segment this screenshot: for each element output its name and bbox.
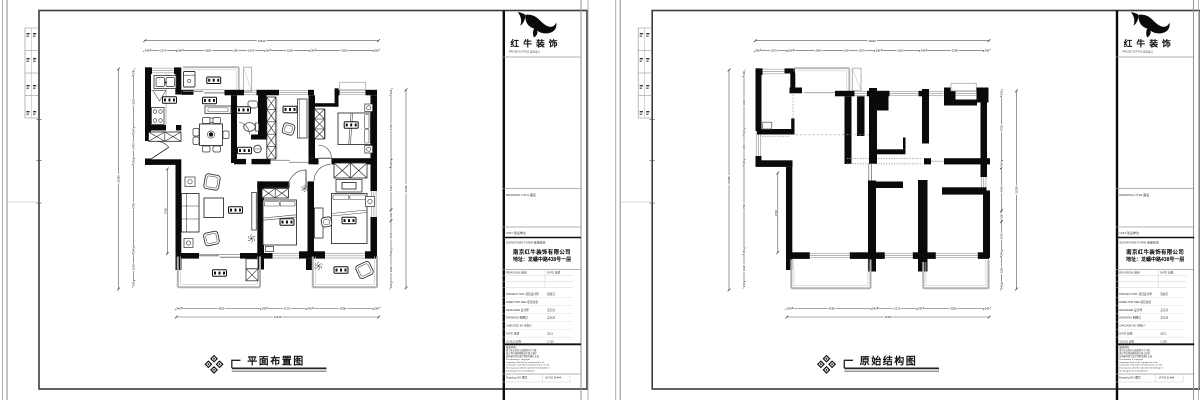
svg-text:PROJECT&TITLE 装饰设计: PROJECT&TITLE 装饰设计: [509, 50, 540, 54]
svg-text:JA742 B-5#4: JA742 B-5#4: [545, 375, 562, 379]
svg-text:2900: 2900: [815, 48, 822, 52]
svg-text:DIRECTOR DER 项目总监: DIRECTOR DER 项目总监: [506, 300, 538, 304]
svg-text:平面布置图: 平面布置图: [247, 354, 305, 367]
svg-text:2250: 2250: [897, 48, 904, 52]
svg-text:1:100: 1:100: [1160, 339, 1167, 343]
svg-text:11310: 11310: [274, 315, 282, 319]
svg-text:SCALE 比例: SCALE 比例: [506, 339, 521, 343]
svg-text:240: 240: [1000, 284, 1004, 289]
svg-text:地址：龙蟠中路438号一层: 地址：龙蟠中路438号一层: [513, 256, 571, 263]
svg-text:REVISIONS 会审: REVISIONS 会审: [506, 270, 527, 274]
svg-text:240: 240: [985, 307, 990, 311]
svg-text:240: 240: [389, 89, 393, 94]
svg-text:240: 240: [1000, 90, 1004, 95]
svg-text:Discrepancy shall be reported: Discrepancy shall be reported immediatel…: [506, 367, 550, 370]
svg-text:3020: 3020: [132, 98, 136, 105]
svg-text:240: 240: [307, 307, 312, 311]
svg-text:2021: 2021: [547, 332, 553, 336]
svg-text:240: 240: [389, 283, 393, 288]
svg-text:4700: 4700: [742, 203, 746, 210]
svg-text:11305: 11305: [404, 185, 408, 193]
svg-text:版权所有: 版权所有: [1119, 345, 1130, 349]
svg-text:240: 240: [132, 69, 136, 74]
svg-text:240: 240: [742, 70, 746, 75]
svg-text:11305: 11305: [1015, 186, 1019, 194]
svg-text:360: 360: [1000, 162, 1004, 167]
svg-text:1470: 1470: [132, 143, 136, 150]
svg-text:1570: 1570: [771, 48, 778, 52]
svg-text:SIGNATURE FORM 会审签名: SIGNATURE FORM 会审签名: [506, 240, 546, 245]
svg-text:1620: 1620: [742, 265, 746, 272]
svg-text:Company shall not be reproduce: Company shall not be reproduced or be: [1119, 361, 1158, 364]
svg-text:1570: 1570: [160, 48, 167, 52]
svg-text:1:100: 1:100: [547, 339, 554, 343]
svg-text:UNIT 建设单位: UNIT 建设单位: [506, 230, 526, 235]
svg-text:240: 240: [788, 48, 793, 52]
svg-text:1570: 1570: [248, 48, 255, 52]
svg-text:1620: 1620: [1000, 267, 1004, 274]
svg-text:DRAWING 制图员: DRAWING 制图员: [1119, 316, 1141, 320]
svg-text:DATE 日期: DATE 日期: [506, 332, 519, 336]
svg-text:孟宪涛: 孟宪涛: [547, 308, 555, 312]
svg-text:240: 240: [265, 48, 270, 52]
svg-text:2410: 2410: [1000, 186, 1004, 193]
svg-text:240: 240: [921, 48, 926, 52]
svg-text:3290: 3290: [950, 307, 957, 311]
svg-text:240: 240: [132, 159, 136, 164]
svg-text:REVISIONS 会审: REVISIONS 会审: [1119, 270, 1140, 274]
svg-text:240: 240: [310, 48, 315, 52]
svg-text:DRAWING LITLE 图名: DRAWING LITLE 图名: [1119, 192, 1149, 197]
svg-text:the designer for amendments: the designer for amendments: [506, 370, 535, 373]
svg-text:4700: 4700: [132, 202, 136, 209]
svg-text:DATE 日期: DATE 日期: [1160, 270, 1173, 274]
svg-text:240: 240: [132, 248, 136, 253]
svg-text:240: 240: [742, 160, 746, 165]
svg-text:12480: 12480: [117, 175, 121, 183]
svg-text:4250: 4250: [829, 307, 836, 311]
svg-text:JA742 B-5#4: JA742 B-5#4: [1158, 375, 1175, 379]
svg-text:南京红牛装饰有限公司: 南京红牛装饰有限公司: [1126, 248, 1184, 256]
svg-text:SCALE 比例: SCALE 比例: [1119, 339, 1134, 343]
svg-text:240: 240: [145, 48, 150, 52]
svg-text:红牛装饰: 红牛装饰: [510, 38, 561, 49]
svg-text:2900: 2900: [205, 48, 212, 52]
svg-text:240: 240: [389, 250, 393, 255]
svg-text:240: 240: [374, 307, 379, 311]
svg-text:240: 240: [742, 129, 746, 134]
svg-text:南京红牛装饰有限公司: 南京红牛装饰有限公司: [513, 248, 571, 256]
svg-text:13610: 13610: [258, 39, 266, 43]
svg-text:11310: 11310: [884, 315, 892, 319]
svg-text:DIRECTOR DER 项目总监: DIRECTOR DER 项目总监: [1119, 300, 1151, 304]
svg-text:4250: 4250: [218, 307, 225, 311]
svg-text:1470: 1470: [742, 144, 746, 151]
svg-text:240: 240: [876, 48, 881, 52]
svg-text:DESIGNER 设计师: DESIGNER 设计师: [506, 308, 529, 312]
svg-text:140: 140: [844, 48, 849, 52]
svg-text:240: 240: [787, 307, 792, 311]
svg-text:Contractor shall check all dim: Contractor shall check all dimensions on…: [506, 364, 550, 367]
svg-text:2410: 2410: [389, 185, 393, 192]
svg-text:4700: 4700: [163, 207, 167, 214]
svg-text:240: 240: [918, 307, 923, 311]
svg-text:1670: 1670: [389, 232, 393, 239]
svg-text:版权所有: 版权所有: [506, 345, 517, 349]
svg-text:CHECKED BY 审核人: CHECKED BY 审核人: [506, 324, 533, 328]
svg-text:240: 240: [261, 307, 266, 311]
svg-text:PROJECT DIR. 项目设计师: PROJECT DIR. 项目设计师: [506, 292, 539, 296]
svg-text:240: 240: [1000, 251, 1004, 256]
svg-text:240: 240: [755, 48, 760, 52]
svg-text:张超凡: 张超凡: [547, 292, 555, 296]
svg-text:12480: 12480: [727, 176, 731, 184]
svg-text:DRAWING 制图员: DRAWING 制图员: [506, 316, 528, 320]
svg-text:DATE 日期: DATE 日期: [1119, 332, 1132, 336]
svg-text:红牛装饰: 红牛装饰: [1124, 38, 1175, 49]
svg-text:4700: 4700: [774, 209, 778, 216]
svg-text:PROJECT&TITLE 装饰设计: PROJECT&TITLE 装饰设计: [1122, 50, 1153, 54]
svg-text:原始结构图: 原始结构图: [860, 354, 918, 367]
svg-text:240: 240: [742, 282, 746, 287]
svg-text:360: 360: [389, 161, 393, 166]
svg-text:3290: 3290: [341, 48, 348, 52]
svg-text:PROJECT DIR. 项目设计师: PROJECT DIR. 项目设计师: [1119, 292, 1152, 296]
svg-text:Drawing NO 图号: Drawing NO 图号: [1119, 375, 1141, 379]
svg-text:240: 240: [132, 281, 136, 286]
svg-text:2170: 2170: [894, 307, 901, 311]
svg-text:3700: 3700: [1000, 125, 1004, 132]
svg-text:3290: 3290: [340, 307, 347, 311]
svg-text:600: 600: [389, 212, 393, 217]
svg-text:The drawing is copyright: The drawing is copyright: [1119, 358, 1143, 361]
svg-text:SIGNATURE FORM 会审签名: SIGNATURE FORM 会审签名: [1119, 240, 1159, 245]
svg-text:240: 240: [984, 48, 989, 52]
svg-text:600: 600: [1000, 213, 1004, 218]
svg-text:DRAWING LITLE 图名: DRAWING LITLE 图名: [506, 192, 536, 197]
svg-text:DESIGNER 设计师: DESIGNER 设计师: [1119, 308, 1142, 312]
svg-text:1620: 1620: [132, 264, 136, 271]
svg-text:240: 240: [374, 48, 379, 52]
svg-text:13610: 13610: [868, 39, 876, 43]
svg-text:1570: 1570: [858, 48, 865, 52]
svg-text:the designer for amendments: the designer for amendments: [1119, 370, 1148, 373]
svg-text:The drawing is copyright: The drawing is copyright: [506, 358, 530, 361]
svg-text:Discrepancy shall be reported: Discrepancy shall be reported immediatel…: [1119, 367, 1163, 370]
svg-text:DATE 日期: DATE 日期: [547, 270, 560, 274]
svg-text:孟宪涛: 孟宪涛: [1160, 316, 1168, 320]
svg-text:240: 240: [872, 307, 877, 311]
svg-text:3290: 3290: [952, 48, 959, 52]
svg-text:240: 240: [176, 307, 181, 311]
svg-text:140: 140: [233, 48, 238, 52]
svg-text:3020: 3020: [742, 99, 746, 106]
svg-text:Contractor shall check all dim: Contractor shall check all dimensions on…: [1119, 364, 1163, 367]
svg-text:孟宪涛: 孟宪涛: [1160, 308, 1168, 312]
svg-text:Company shall not be reproduce: Company shall not be reproduced or be: [506, 361, 545, 364]
svg-text:240: 240: [742, 249, 746, 254]
svg-text:3700: 3700: [389, 124, 393, 131]
svg-text:1670: 1670: [1000, 233, 1004, 240]
svg-text:张超凡: 张超凡: [1160, 292, 1168, 296]
svg-text:240: 240: [132, 128, 136, 133]
svg-text:Drawing NO 图号: Drawing NO 图号: [506, 375, 528, 379]
svg-text:2021: 2021: [1160, 332, 1166, 336]
svg-text:CHECKED BY 审核人: CHECKED BY 审核人: [1119, 324, 1146, 328]
svg-text:1620: 1620: [389, 266, 393, 273]
svg-text:240: 240: [177, 48, 182, 52]
svg-text:地址：龙蟠中路438号一层: 地址：龙蟠中路438号一层: [1126, 256, 1184, 263]
svg-text:2250: 2250: [287, 48, 294, 52]
svg-text:2170: 2170: [284, 307, 291, 311]
svg-text:孟宪涛: 孟宪涛: [547, 316, 555, 320]
svg-text:UNIT 建设单位: UNIT 建设单位: [1119, 230, 1139, 235]
